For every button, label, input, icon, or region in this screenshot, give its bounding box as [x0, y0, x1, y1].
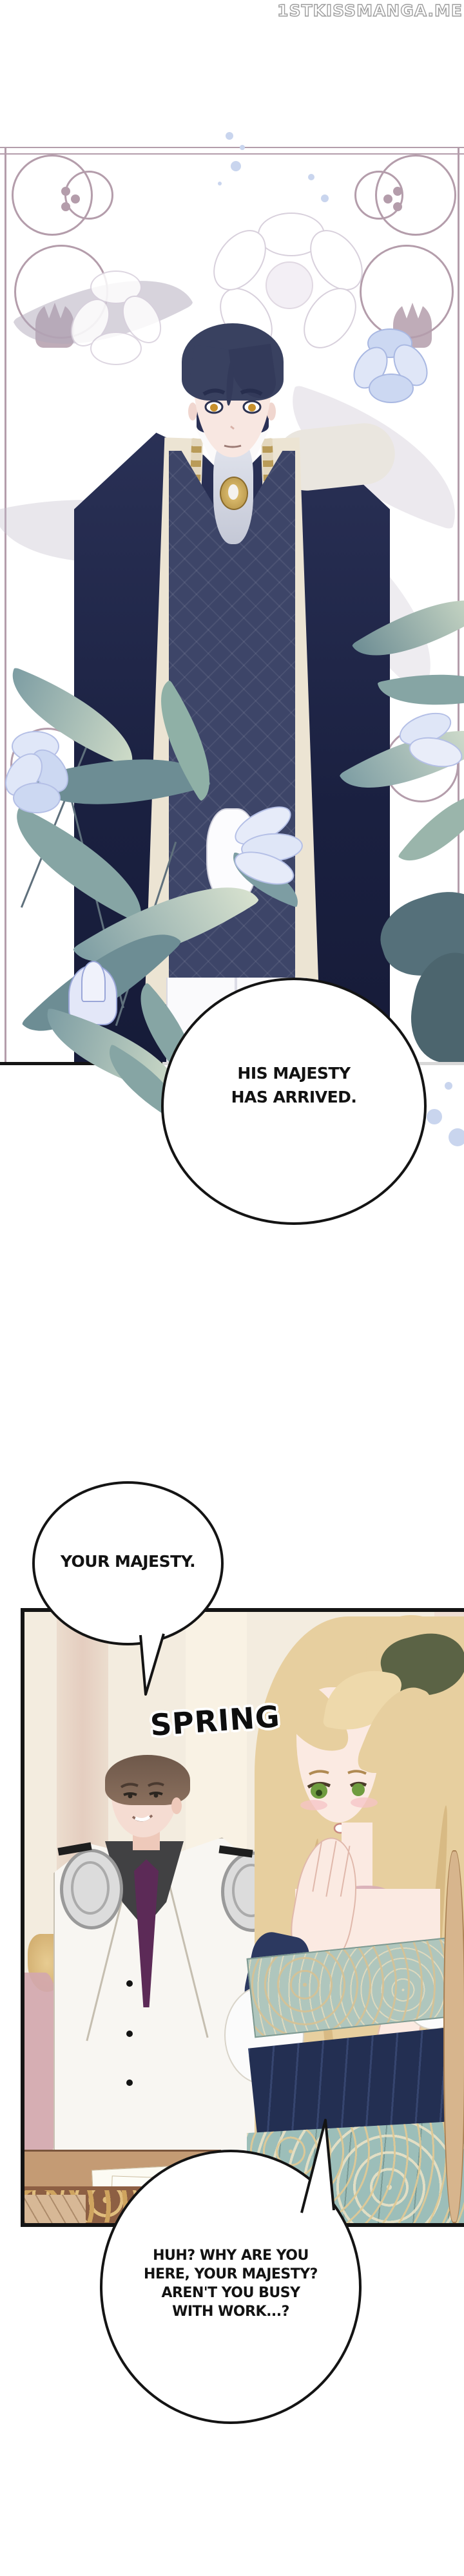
speech-bubble-1: HIS MAJESTY HAS ARRIVED.: [161, 978, 427, 1225]
duke-face-features: [115, 1777, 176, 1832]
speech-text-line: HUH? WHY ARE YOU: [102, 2246, 359, 2265]
watercolor-dot: [308, 174, 314, 180]
speech-bubble-2-tail: [122, 1631, 174, 1699]
speech-text-line: YOUR MAJESTY.: [35, 1549, 221, 1573]
front-hair-strand: [443, 1850, 464, 2223]
speech-text-line: WITH WORK...?: [102, 2302, 359, 2321]
finger-line: [340, 1846, 351, 1897]
speech-text-line: HAS ARRIVED.: [164, 1085, 424, 1109]
speech-text-line: HERE, YOUR MAJESTY?: [102, 2265, 359, 2284]
watercolor-dot: [240, 145, 245, 150]
watercolor-dot: [218, 182, 222, 185]
emperor-face-features: [195, 386, 272, 457]
epaulette-ring: [71, 1861, 110, 1915]
petal-shape: [13, 782, 61, 813]
speech-bubble-3-tail: [290, 2115, 345, 2218]
blue-flower-cluster: [0, 731, 71, 815]
speech-text-line: AREN'T YOU BUSY: [102, 2284, 359, 2302]
jacket-button: [126, 2031, 133, 2037]
watercolor-dot: [445, 1082, 452, 1090]
blue-flower-cluster: [348, 328, 432, 412]
petal-shape: [81, 961, 106, 1002]
watercolor-dot: [427, 1109, 442, 1124]
panel-1: [0, 26, 464, 1064]
speech-text-line: HIS MAJESTY: [164, 1061, 424, 1085]
pale-lily-flower: [393, 708, 464, 779]
cravat-brooch: [220, 477, 248, 510]
manga-page: 1STKISSMANGA.ME: [0, 0, 464, 2576]
finger-line: [312, 1841, 322, 1891]
watercolor-dot: [231, 161, 241, 171]
finger-line: [325, 1841, 336, 1897]
panel-2: SPRING: [21, 1608, 464, 2227]
watercolor-dot: [321, 194, 329, 202]
jacket-button: [126, 1980, 133, 1987]
speech-bubble-2: YOUR MAJESTY.: [32, 1481, 224, 1645]
site-watermark: 1STKISSMANGA.ME: [277, 1, 463, 22]
watercolor-dot: [449, 1128, 464, 1146]
epaulette: [60, 1849, 123, 1929]
jacket-button: [126, 2079, 133, 2086]
petal-shape: [369, 374, 414, 403]
watercolor-dot: [226, 132, 233, 140]
parquet-floor: [24, 2195, 86, 2223]
brooch-gem: [228, 484, 238, 500]
